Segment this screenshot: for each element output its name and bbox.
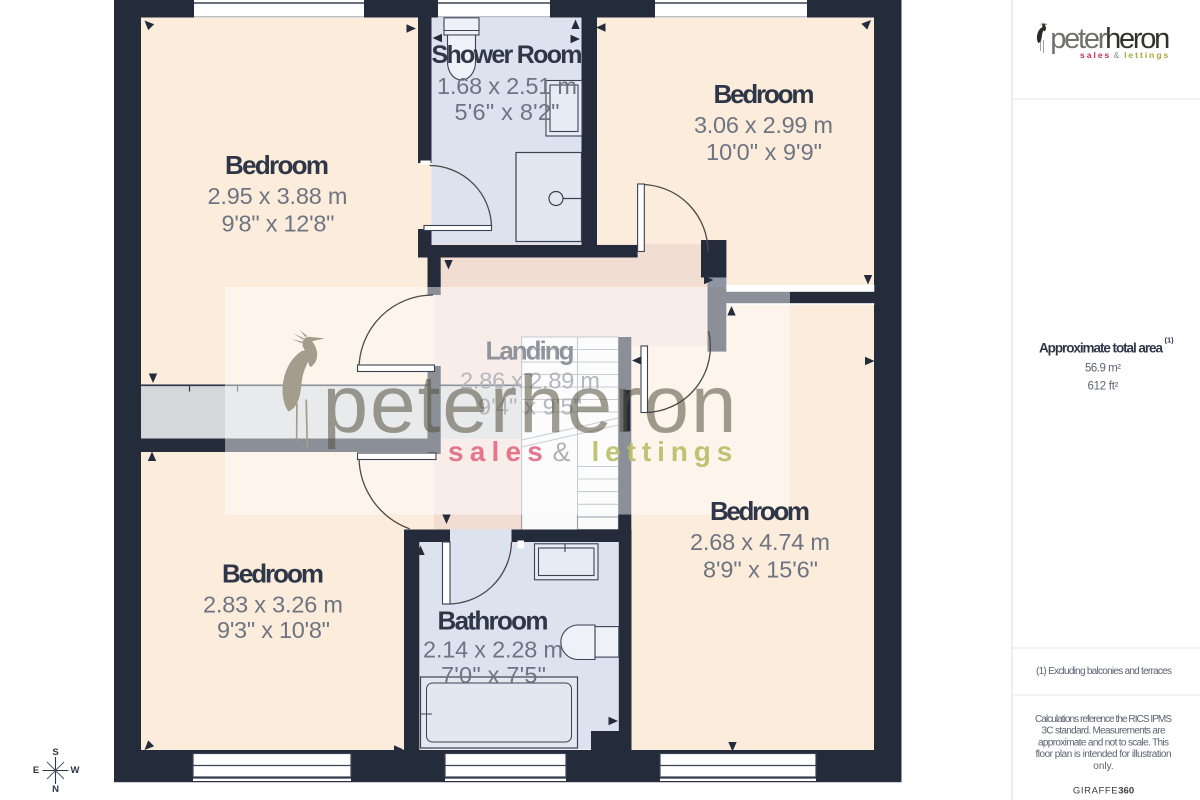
svg-text:Bedroom: Bedroom: [714, 79, 815, 109]
svg-text:(1) Excluding balconies and te: (1) Excluding balconies and terraces: [1036, 666, 1172, 677]
svg-text:W: W: [71, 765, 80, 776]
svg-text:7'0" x 7'5": 7'0" x 7'5": [441, 662, 546, 688]
svg-text:Bedroom: Bedroom: [710, 496, 810, 526]
svg-text:2.68 x 4.74 m: 2.68 x 4.74 m: [690, 529, 830, 555]
svg-text:Shower Room: Shower Room: [432, 41, 583, 69]
svg-text:9'3" x 10'8": 9'3" x 10'8": [217, 617, 330, 643]
svg-text:3.06 x 2.99 m: 3.06 x 2.99 m: [694, 112, 833, 138]
svg-text:5'6" x 8'2": 5'6" x 8'2": [455, 99, 560, 125]
svg-text:approximate and not to scale.: approximate and not to scale. This: [1038, 737, 1169, 748]
svg-text:&: &: [553, 437, 571, 467]
svg-text:612 ft²: 612 ft²: [1088, 381, 1119, 393]
svg-text:Calculations reference the RIC: Calculations reference the RICS IPMS: [1035, 714, 1172, 725]
svg-text:sales & lettings: sales & lettings: [1080, 50, 1170, 60]
svg-text:Bedroom: Bedroom: [225, 150, 329, 180]
svg-text:sales: sales: [448, 436, 549, 467]
svg-text:S: S: [52, 747, 58, 758]
svg-text:lettings: lettings: [592, 436, 739, 467]
svg-text:GIRAFFE360: GIRAFFE360: [1073, 785, 1134, 796]
svg-text:3C standard. Measurements are: 3C standard. Measurements are: [1042, 726, 1166, 737]
svg-text:2.14 x 2.28 m: 2.14 x 2.28 m: [423, 637, 563, 663]
svg-text:only.: only.: [1093, 761, 1113, 772]
svg-text:N: N: [52, 784, 59, 795]
svg-text:E: E: [33, 765, 39, 776]
svg-text:Bathroom: Bathroom: [438, 606, 549, 636]
svg-text:10'0" x 9'9": 10'0" x 9'9": [706, 139, 822, 165]
svg-text:2.83 x 3.26 m: 2.83 x 3.26 m: [203, 592, 343, 618]
svg-text:(1): (1): [1165, 336, 1175, 345]
svg-text:Approximate total area: Approximate total area: [1039, 341, 1163, 356]
svg-text:2.95 x 3.88 m: 2.95 x 3.88 m: [208, 183, 348, 209]
svg-text:Bedroom: Bedroom: [222, 559, 324, 589]
svg-text:1.68 x 2.51 m: 1.68 x 2.51 m: [437, 73, 577, 99]
svg-text:56.9 m²: 56.9 m²: [1085, 363, 1121, 375]
svg-text:8'9" x 15'6": 8'9" x 15'6": [703, 557, 818, 583]
svg-text:9'8" x 12'8": 9'8" x 12'8": [222, 211, 335, 237]
svg-text:floor plan is intended for ill: floor plan is intended for illustration: [1036, 749, 1172, 760]
